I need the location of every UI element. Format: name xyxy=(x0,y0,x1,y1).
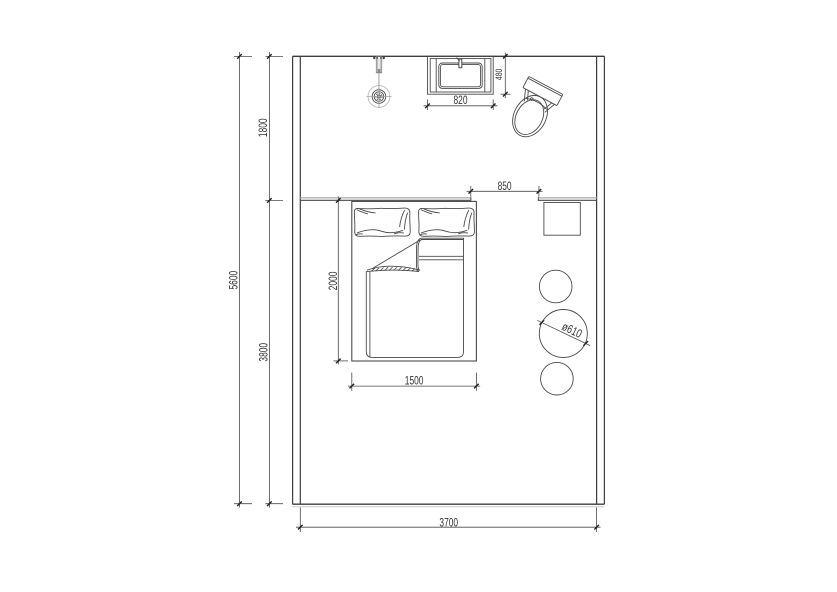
svg-text:3800: 3800 xyxy=(258,343,271,362)
svg-text:820: 820 xyxy=(454,95,468,108)
svg-text:ø610: ø610 xyxy=(560,320,584,341)
svg-text:5600: 5600 xyxy=(228,271,241,290)
svg-text:850: 850 xyxy=(498,181,512,194)
svg-text:1800: 1800 xyxy=(258,118,271,137)
svg-text:480: 480 xyxy=(494,68,504,80)
svg-text:3700: 3700 xyxy=(439,517,458,530)
svg-text:1500: 1500 xyxy=(405,375,424,388)
svg-text:2000: 2000 xyxy=(328,271,341,290)
